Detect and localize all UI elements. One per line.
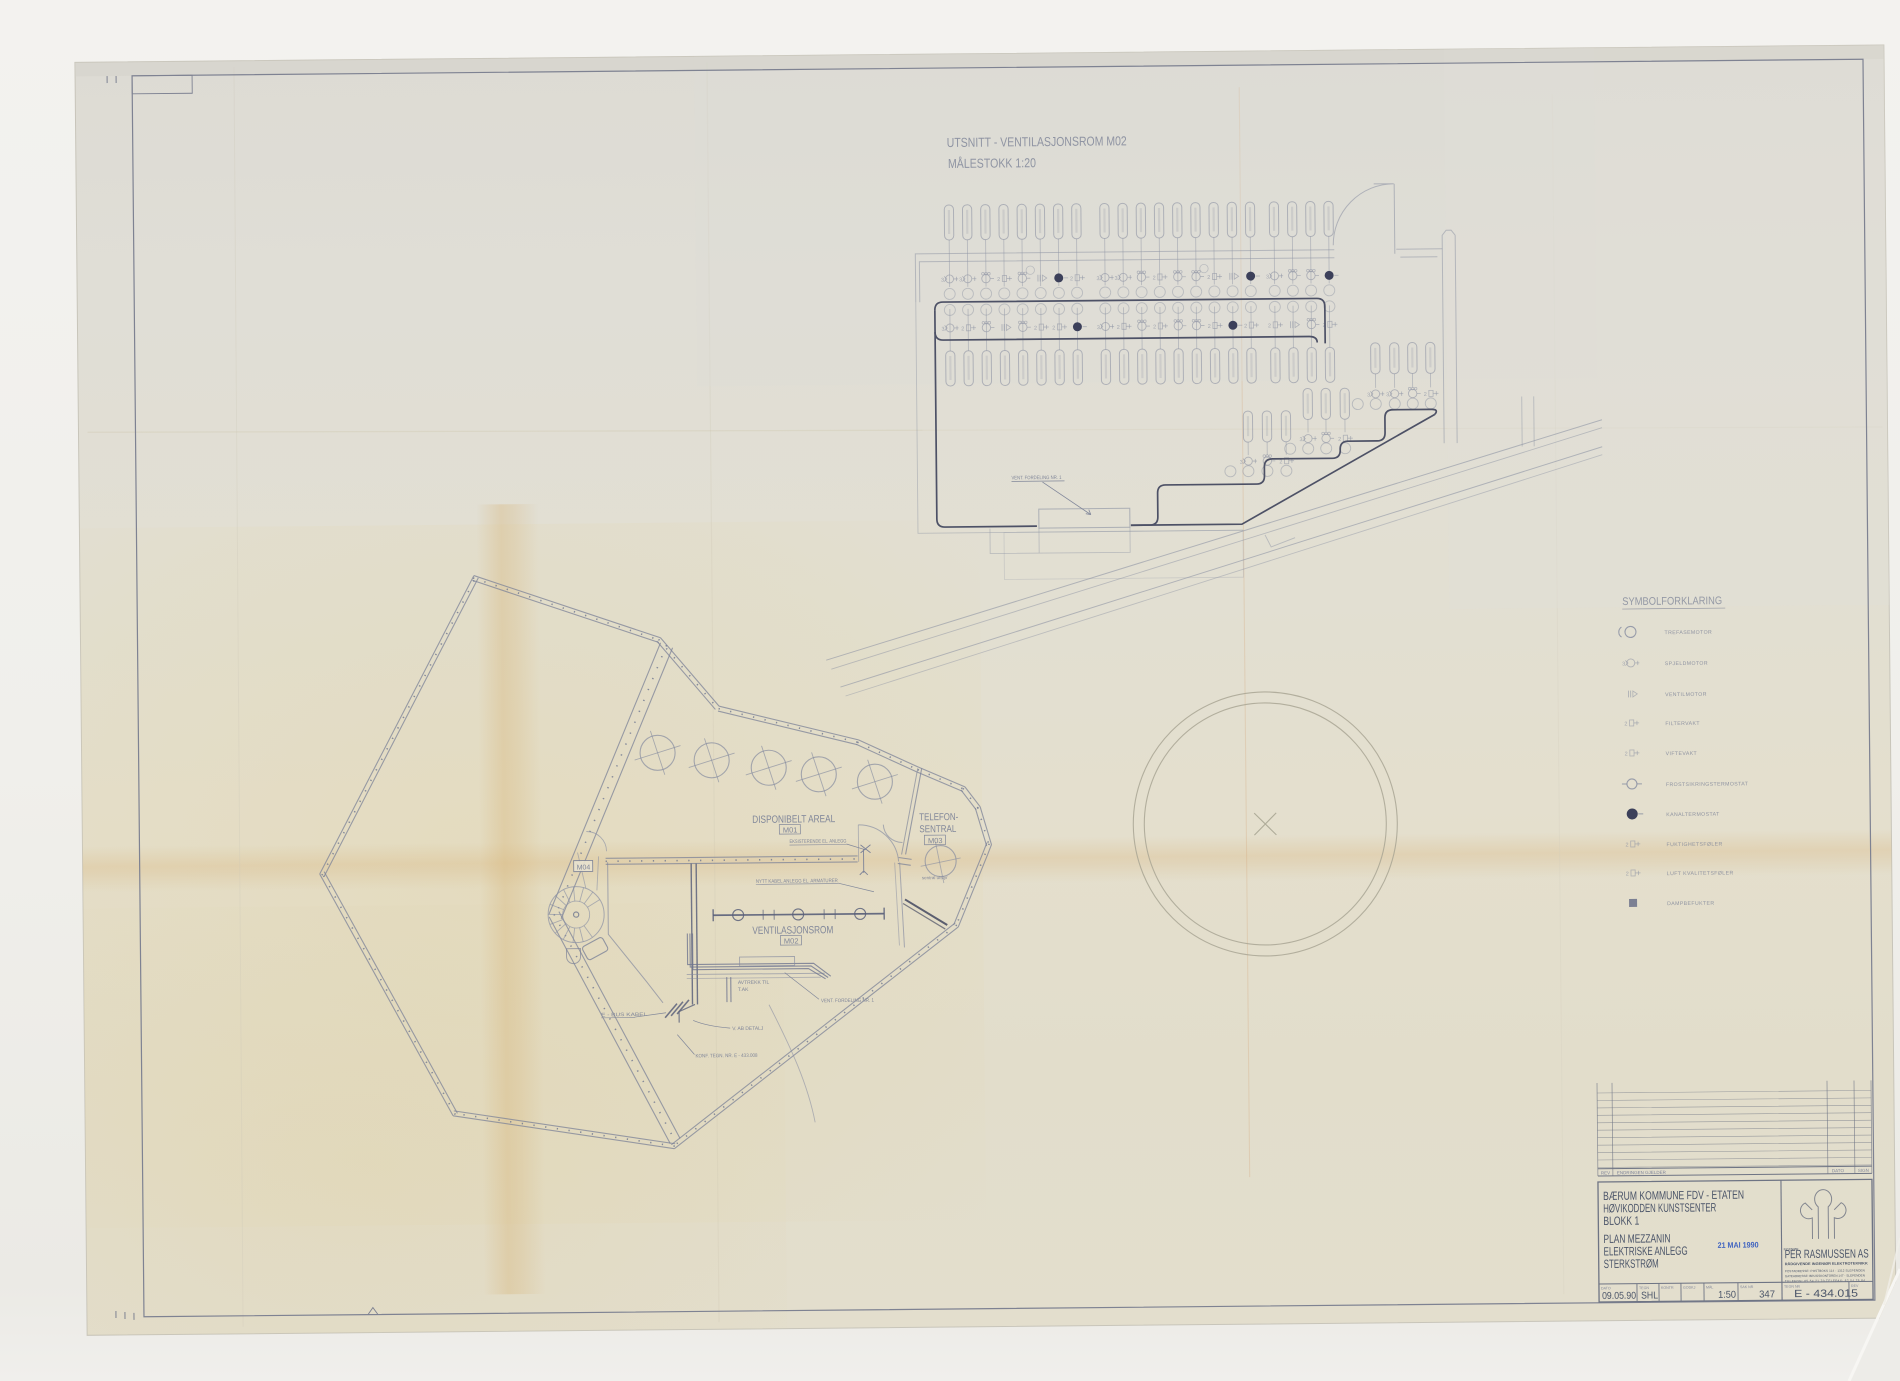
svg-text:2: 2 bbox=[1625, 842, 1628, 848]
svg-text:2: 2 bbox=[1034, 326, 1037, 332]
svg-text:SPJELDMOTOR: SPJELDMOTOR bbox=[1665, 661, 1708, 667]
svg-text:2: 2 bbox=[1052, 325, 1055, 331]
svg-text:2: 2 bbox=[1207, 275, 1210, 281]
svg-text:AVTREKK TIL: AVTREKK TIL bbox=[738, 980, 770, 986]
svg-text:TELEFON-: TELEFON- bbox=[919, 812, 958, 823]
svg-text:MÅL: MÅL bbox=[1706, 1284, 1713, 1289]
svg-text:UTSNITT - VENTILASJONSROM M02: UTSNITT - VENTILASJONSROM M02 bbox=[947, 133, 1127, 150]
svg-text:LUFT KVALITETSFØLER: LUFT KVALITETSFØLER bbox=[1667, 870, 1734, 877]
svg-text:1:50: 1:50 bbox=[1718, 1290, 1737, 1301]
svg-text:DATO: DATO bbox=[1832, 1168, 1845, 1173]
svg-text:M04: M04 bbox=[577, 864, 591, 871]
svg-text:2: 2 bbox=[1153, 325, 1156, 331]
svg-text:VENT. FORDELING NR. 1: VENT. FORDELING NR. 1 bbox=[821, 998, 874, 1005]
svg-text:2: 2 bbox=[1268, 323, 1271, 329]
svg-text:2: 2 bbox=[1424, 392, 1427, 398]
svg-text:KONF. TEGN. NR. E - 433.008: KONF. TEGN. NR. E - 433.008 bbox=[695, 1053, 757, 1060]
svg-text:21 MAI 1990: 21 MAI 1990 bbox=[1718, 1240, 1760, 1249]
svg-text:REV: REV bbox=[1601, 1170, 1610, 1175]
svg-text:V. AB DETALJ: V. AB DETALJ bbox=[732, 1026, 764, 1032]
svg-text:2: 2 bbox=[1208, 324, 1211, 330]
svg-text:KANALTERMOSTAT: KANALTERMOSTAT bbox=[1666, 812, 1720, 819]
svg-text:2: 2 bbox=[1624, 721, 1627, 727]
svg-text:POSTADRESSE: POSTBOKS 114 - 13: POSTADRESSE: POSTBOKS 114 - 1312 SLEPEND… bbox=[1785, 1268, 1865, 1273]
svg-text:SENTRAL: SENTRAL bbox=[919, 824, 956, 835]
svg-text:3: 3 bbox=[1266, 274, 1269, 280]
svg-text:2: 2 bbox=[1153, 276, 1156, 282]
svg-text:2: 2 bbox=[1279, 459, 1282, 465]
svg-text:2: 2 bbox=[1117, 325, 1120, 331]
svg-text:3: 3 bbox=[1622, 662, 1625, 668]
svg-text:STERKSTRØM: STERKSTRØM bbox=[1604, 1256, 1659, 1271]
svg-text:DATO: DATO bbox=[1601, 1286, 1611, 1290]
svg-text:347: 347 bbox=[1759, 1289, 1776, 1300]
svg-text:GATEADRESSE: BRUGSKONTOREN 147: GATEADRESSE: BRUGSKONTOREN 147 - SLEPEND… bbox=[1785, 1273, 1865, 1278]
svg-text:ENDRINGEN GJELDER: ENDRINGEN GJELDER bbox=[1617, 1170, 1667, 1175]
svg-text:TEGN: TEGN bbox=[1639, 1286, 1649, 1290]
svg-text:VIFTEVAKT: VIFTEVAKT bbox=[1666, 751, 1698, 757]
svg-text:2: 2 bbox=[1070, 276, 1073, 282]
svg-text:3: 3 bbox=[1386, 392, 1389, 398]
svg-text:FUKTIGHETSFØLER: FUKTIGHETSFØLER bbox=[1666, 842, 1722, 849]
svg-text:sentral utstyr: sentral utstyr bbox=[922, 875, 948, 880]
svg-text:SHL: SHL bbox=[1641, 1290, 1658, 1301]
svg-text:PER RASMUSSEN AS: PER RASMUSSEN AS bbox=[1785, 1246, 1869, 1261]
svg-text:VENTILASJONSROM: VENTILASJONSROM bbox=[752, 924, 833, 937]
svg-text:SAK NR: SAK NR bbox=[1740, 1285, 1754, 1289]
svg-text:2: 2 bbox=[961, 326, 964, 332]
svg-text:T.AK: T.AK bbox=[738, 987, 749, 993]
svg-text:EKSISTERENDE EL. ANLEGG: EKSISTERENDE EL. ANLEGG bbox=[789, 839, 846, 846]
svg-text:E - 434.015: E - 434.015 bbox=[1794, 1288, 1858, 1301]
svg-text:MÅLESTOKK 1:20: MÅLESTOKK 1:20 bbox=[948, 155, 1036, 171]
svg-text:2: 2 bbox=[1625, 751, 1628, 757]
svg-text:3: 3 bbox=[1096, 276, 1099, 282]
svg-text:VENTILMOTOR: VENTILMOTOR bbox=[1665, 692, 1707, 698]
svg-text:SYMBOLFORKLARING: SYMBOLFORKLARING bbox=[1622, 595, 1722, 608]
svg-text:KONTR: KONTR bbox=[1661, 1286, 1674, 1290]
svg-text:VENT. FORDELING NR. 1: VENT. FORDELING NR. 1 bbox=[1011, 475, 1061, 481]
svg-text:FROSTSIKRINGSTERMOSTAT: FROSTSIKRINGSTERMOSTAT bbox=[1666, 781, 1749, 788]
svg-text:3: 3 bbox=[1115, 276, 1118, 282]
svg-text:BLOKK 1: BLOKK 1 bbox=[1603, 1214, 1639, 1228]
svg-text:FILTERVAKT: FILTERVAKT bbox=[1665, 721, 1700, 727]
svg-text:09.05.90: 09.05.90 bbox=[1602, 1291, 1636, 1302]
svg-text:3: 3 bbox=[1299, 437, 1302, 443]
svg-text:3: 3 bbox=[941, 327, 944, 333]
svg-text:GODKJ: GODKJ bbox=[1683, 1286, 1696, 1290]
svg-text:RÅDGIVENDE INGENIØR ELEKTROTEK: RÅDGIVENDE INGENIØR ELEKTROTEKNIKK bbox=[1785, 1260, 1868, 1266]
svg-text:TREFASEMOTOR: TREFASEMOTOR bbox=[1664, 630, 1712, 636]
svg-text:M03: M03 bbox=[928, 836, 943, 845]
svg-text:3: 3 bbox=[1240, 460, 1243, 466]
svg-text:DISPONIBELT AREAL: DISPONIBELT AREAL bbox=[752, 813, 835, 826]
svg-text:3: 3 bbox=[941, 278, 944, 284]
svg-text:SIGN: SIGN bbox=[1858, 1168, 1869, 1173]
svg-text:M01: M01 bbox=[783, 825, 798, 834]
svg-text:3: 3 bbox=[1367, 392, 1370, 398]
svg-text:3: 3 bbox=[959, 277, 962, 283]
svg-text:DAMPBEFUKTER: DAMPBEFUKTER bbox=[1667, 901, 1715, 907]
svg-text:2: 2 bbox=[1626, 871, 1629, 877]
svg-text:2: 2 bbox=[997, 277, 1000, 283]
svg-text:2: 2 bbox=[1338, 437, 1341, 443]
svg-text:2: 2 bbox=[1244, 324, 1247, 330]
svg-text:M02: M02 bbox=[784, 936, 799, 945]
svg-text:3: 3 bbox=[1097, 325, 1100, 331]
